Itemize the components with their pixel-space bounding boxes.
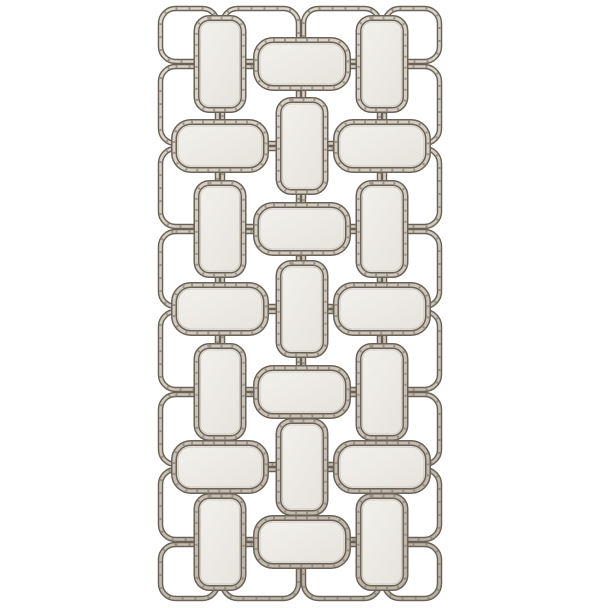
mirror-panel — [256, 368, 348, 416]
mirror-panel — [197, 183, 244, 275]
product-photo — [0, 0, 608, 608]
mirror-panel — [197, 18, 244, 110]
mirror-panel — [336, 285, 428, 333]
mirror-panel — [359, 18, 406, 110]
mirror-panel — [359, 183, 406, 275]
mirror-panel — [256, 205, 348, 253]
mirror-panel — [197, 496, 244, 588]
mirror-panel — [256, 518, 348, 566]
mirror-panel — [256, 40, 348, 88]
mirror-panel — [279, 421, 326, 513]
wall-mirror-illustration — [0, 0, 608, 608]
mirror-panel — [336, 443, 428, 491]
mirror-panel — [174, 443, 266, 491]
mirror-panel — [336, 122, 428, 170]
mirror-panels — [174, 18, 428, 588]
mirror-panel — [279, 100, 326, 192]
mirror-panel — [174, 285, 266, 333]
mirror-panel — [197, 346, 244, 438]
mirror-panel — [174, 122, 266, 170]
mirror-panel — [279, 263, 326, 355]
mirror-panel — [359, 496, 406, 588]
mirror-panel — [359, 346, 406, 438]
